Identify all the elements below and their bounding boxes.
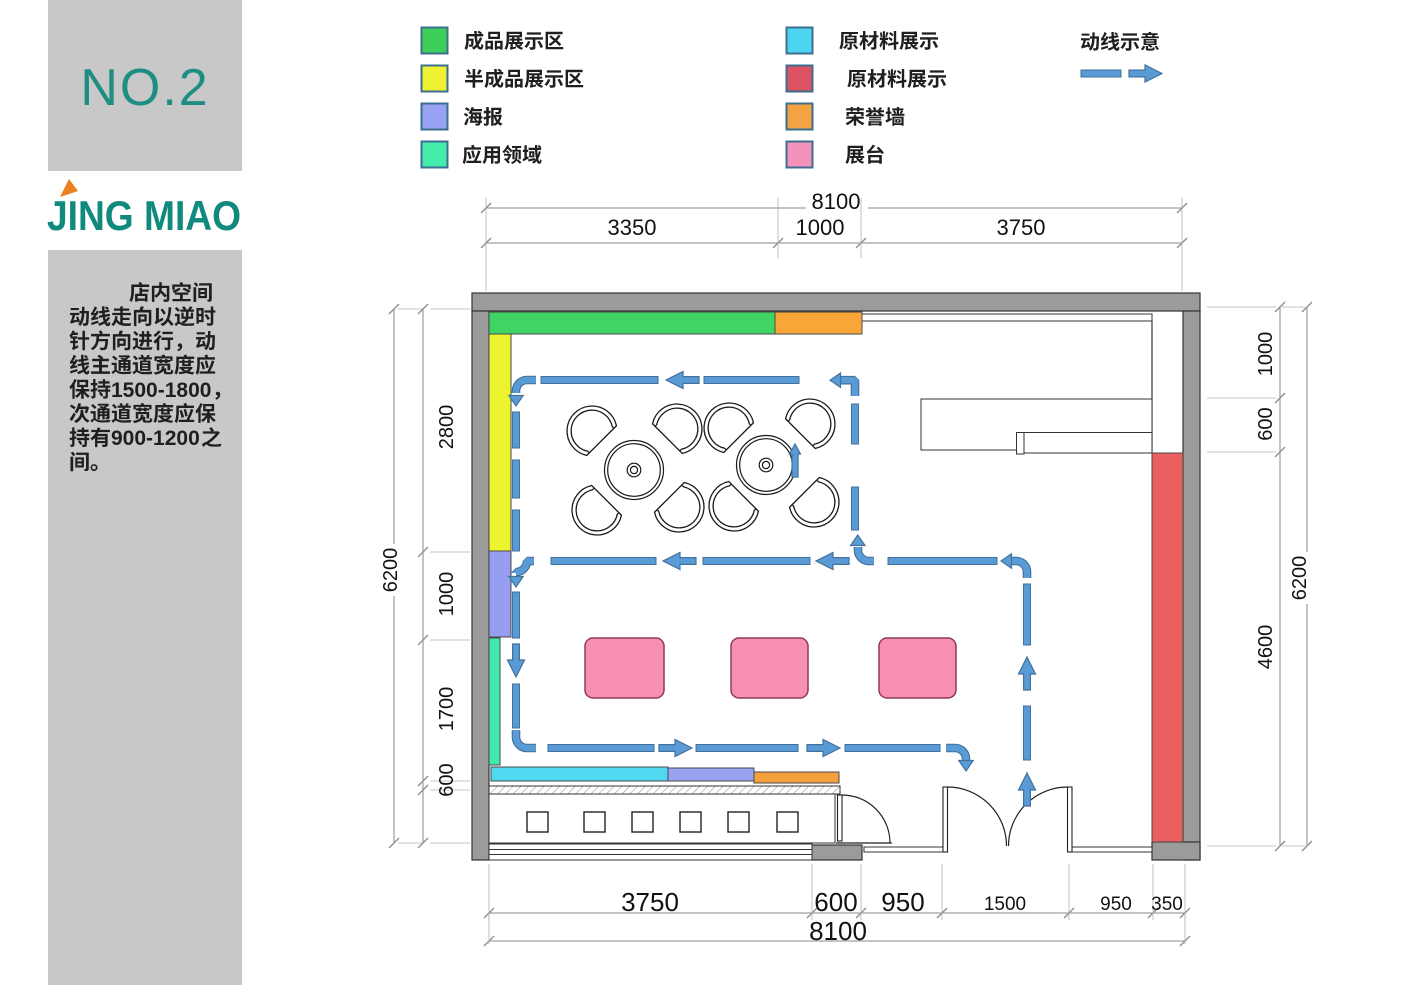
svg-text:2800: 2800	[436, 405, 458, 450]
svg-text:1000: 1000	[436, 572, 458, 617]
svg-text:1000: 1000	[1255, 332, 1277, 377]
svg-text:8100: 8100	[812, 189, 861, 214]
svg-text:350: 350	[1151, 894, 1183, 915]
svg-text:6200: 6200	[1289, 556, 1311, 601]
svg-text:1000: 1000	[796, 215, 845, 240]
svg-text:1700: 1700	[436, 687, 458, 732]
svg-text:3750: 3750	[997, 215, 1046, 240]
svg-text:1500-1800: 1500-1800	[111, 379, 211, 402]
svg-text:950: 950	[1100, 894, 1132, 915]
svg-text:4600: 4600	[1255, 625, 1277, 670]
svg-text:3350: 3350	[608, 215, 657, 240]
svg-text:600: 600	[436, 763, 458, 796]
svg-text:NO.2: NO.2	[80, 59, 209, 117]
svg-text:JING MIAO: JING MIAO	[47, 192, 241, 239]
svg-text:1500: 1500	[984, 894, 1026, 915]
svg-text:900-1200: 900-1200	[111, 427, 200, 450]
svg-text:600: 600	[814, 887, 857, 917]
svg-text:8100: 8100	[809, 916, 867, 946]
svg-text:6200: 6200	[380, 548, 402, 593]
svg-text:600: 600	[1255, 407, 1277, 440]
svg-text:950: 950	[881, 887, 924, 917]
svg-text:3750: 3750	[621, 887, 679, 917]
